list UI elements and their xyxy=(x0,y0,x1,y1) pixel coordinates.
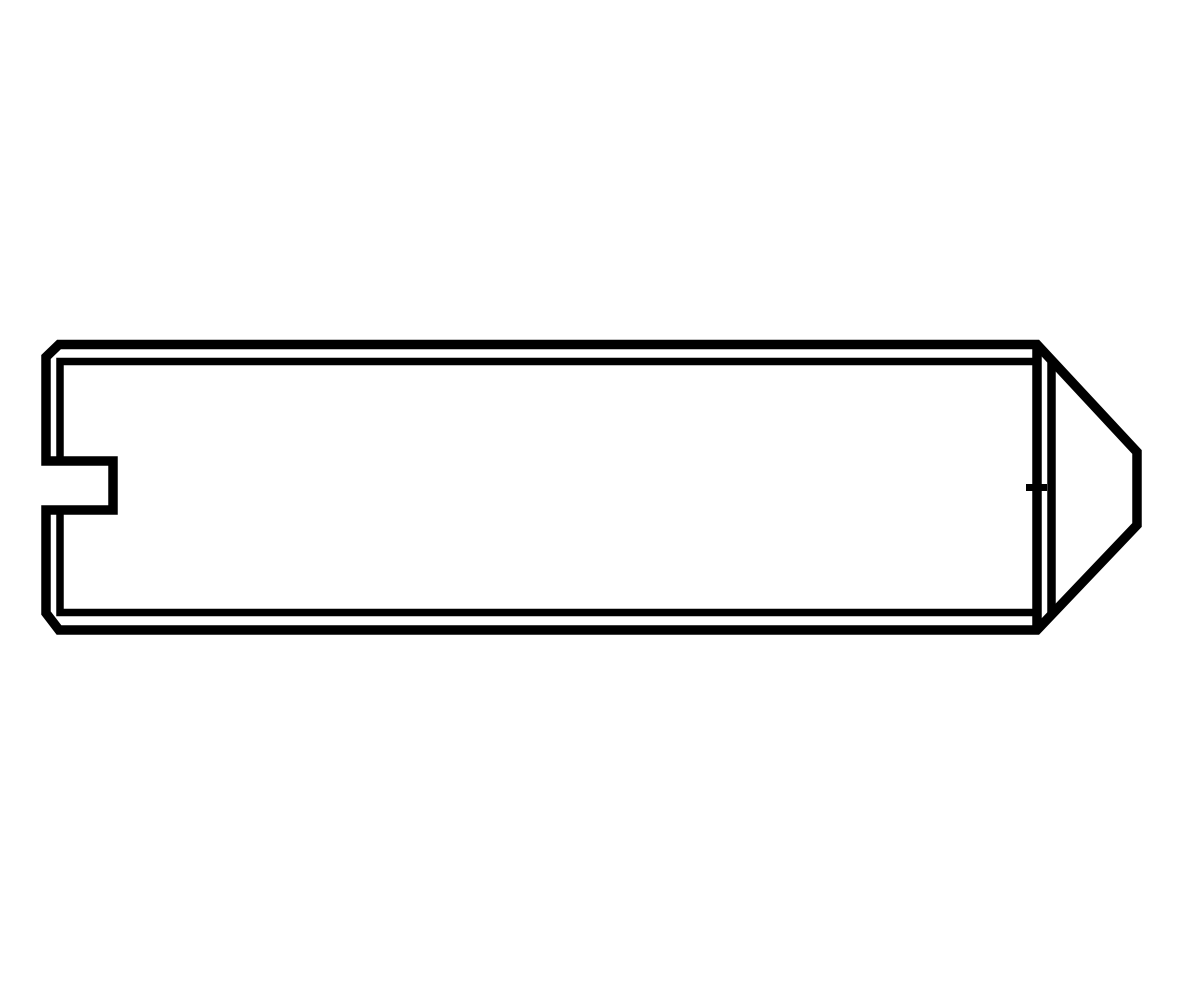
screw-outer-contour xyxy=(46,345,1137,631)
set-screw-diagram xyxy=(0,0,1200,1000)
drawing-canvas xyxy=(0,0,1200,1000)
